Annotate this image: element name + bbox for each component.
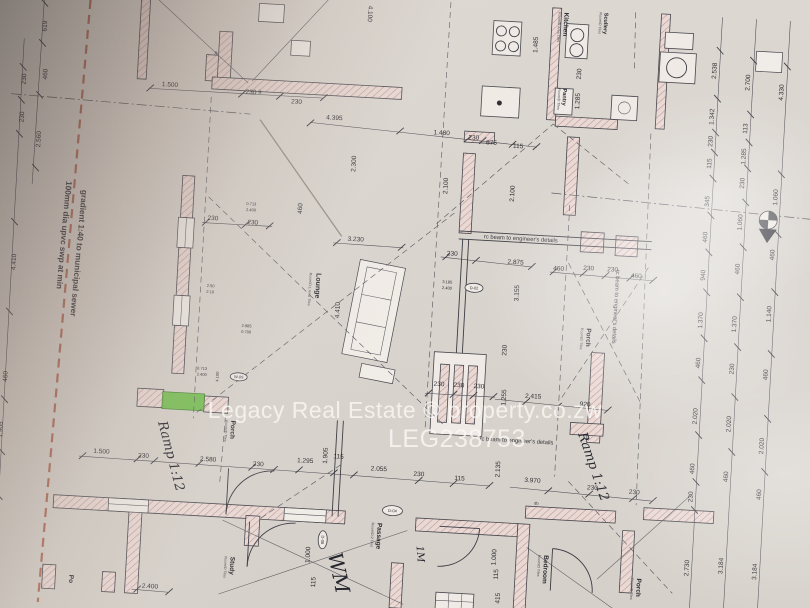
room-label-corner: Po [67, 575, 74, 584]
dim-label: 4.410 [334, 301, 342, 318]
dim-label: 230 [629, 489, 641, 497]
dim-label: 3.185 [442, 279, 453, 285]
room-label-passage: Passage [374, 523, 382, 550]
dim-label: 2.560 [35, 130, 43, 147]
room-sub: RoomID Tiles [597, 12, 602, 34]
dim-label: 230 [501, 344, 509, 356]
dim-label: 1.285 [740, 148, 748, 165]
dim-label: 230 [687, 491, 695, 503]
coffee-table [359, 363, 395, 383]
dim-label: 4.395 [326, 114, 343, 122]
dim-label: 1.060 [772, 189, 780, 206]
dim-label: 0.700 [241, 329, 252, 335]
shower-grid [435, 592, 474, 608]
dim-label: 230 [245, 89, 257, 97]
room-sub: RoomID Tiles [222, 556, 227, 578]
room-sub: RoomID Tiles [536, 555, 541, 577]
dim-label: 230 [576, 68, 584, 80]
dim-label: 2.985 [241, 323, 252, 329]
dim-label: 2.055 [371, 465, 388, 473]
survey-marker-icon [758, 211, 778, 244]
walls-layer [42, 0, 785, 608]
dim-label: 2.400 [246, 207, 257, 213]
sink-unit [659, 52, 697, 84]
dim-label: 1.140 [766, 306, 774, 323]
dim-label: 1.255 [500, 389, 508, 406]
dim-label: 460 [42, 68, 50, 80]
dimension-labels-right: 2.538 1.342 230 115 345 460 940 1.370 46… [683, 62, 787, 580]
room-sub: RoomID:1 Area Tiles [307, 273, 313, 306]
dim-label: 115 [310, 576, 318, 587]
dim-label: 4.410 [10, 253, 18, 270]
dim-label: 460 [297, 203, 305, 215]
dim-label: 1.485 [532, 36, 540, 53]
dim-label: 3.230 [347, 236, 364, 244]
dim-label: 460 [762, 369, 770, 381]
plan-tilt-group: 100mm dia upvc swp at min gradient 1:40 … [0, 0, 810, 608]
stove [492, 21, 522, 57]
dim-label: 1.000 [304, 546, 312, 563]
dim-label: 2.538 [711, 62, 719, 79]
dimension-labels-left: 619 230 460 230 2.560 4.410 460 1.905 23… [0, 19, 52, 521]
dim-label: 4.100 [366, 5, 374, 22]
door-tag: D-08 [320, 535, 326, 545]
dim-label: 1.480 [433, 129, 450, 137]
sewer-line-group: 100mm dia upvc swp at min gradient 1:40 … [37, 0, 101, 604]
dim-label: 1.370 [731, 316, 739, 333]
window-tag: W-09 [234, 374, 245, 380]
dim-label: 460 [769, 249, 777, 261]
door-tag: D-04 [388, 508, 398, 514]
dimension-labels-middle: 230 230 0.713 2.400 460 3.230 230 2.875 … [196, 198, 645, 413]
dim-label: 230 [247, 219, 259, 227]
dim-label: 1.000 [491, 549, 499, 566]
dim-label: 230 [583, 265, 595, 273]
pen-crease-line [254, 120, 348, 237]
room-label-kitchen: Kitchen [561, 12, 569, 36]
rc-beam-note: rc beam to engineer's details [479, 436, 553, 446]
floorplan-photo: 100mm dia upvc swp at min gradient 1:40 … [0, 0, 810, 608]
room-sub: RoomID:2 Tiles [369, 522, 374, 547]
dim-label: 2.100 [442, 177, 450, 194]
dim-label: 2.700 [744, 74, 752, 91]
dim-label: 460 [553, 265, 565, 273]
dim-label: 0.713 [246, 201, 257, 207]
dim-label: 2.430 [235, 0, 252, 1]
hip-lines-and-doors [119, 0, 717, 608]
dim-label: 875 [486, 139, 498, 147]
dim-label: 3.184 [751, 563, 759, 580]
room-label-study: Study [228, 557, 236, 576]
dim-label: 1.905 [0, 421, 5, 438]
dim-label: 2.135 [494, 461, 502, 478]
dim-label: 4.100 [214, 371, 220, 382]
handwriting-im: 1M [414, 545, 426, 563]
dim-label: 460 [734, 263, 742, 275]
dim-label: 113 [742, 123, 750, 134]
dim-label: 1.060 [737, 214, 745, 231]
sewer-note-line1: 100mm dia upvc swp at min [55, 181, 74, 290]
dim-label: 460 [702, 231, 710, 243]
handwriting-ramp: Ramp 1:12 [154, 419, 187, 493]
dim-label: 345 [704, 195, 712, 207]
db-tag: db [257, 89, 262, 94]
dim-label: 2.400 [197, 371, 208, 377]
floorplan-drawing: 100mm dia upvc swp at min gradient 1:40 … [0, 0, 810, 608]
dim-label: 415 [494, 592, 502, 604]
dim-label: 920 [579, 401, 591, 409]
dim-label: 230 [138, 452, 150, 460]
dim-label: 230 [729, 363, 737, 375]
dim-label: 1.500 [93, 448, 110, 456]
handwriting-ramp: Ramp 1:12 [574, 429, 612, 503]
room-sub: RoomID Tiles [579, 328, 584, 350]
appliance [611, 95, 638, 120]
dim-label: 460 [756, 489, 764, 501]
dim-label: 115 [333, 453, 344, 461]
dim-label: 4.330 [778, 84, 786, 101]
rc-beam-note: rc beam to engineer's details [610, 270, 620, 344]
dim-label: 0.713 [197, 365, 208, 371]
dim-label: 460 [689, 463, 697, 475]
dim-label: 619 [42, 20, 50, 32]
dim-label: 230 [447, 250, 459, 258]
room-label-porch-front: Porch [228, 420, 236, 439]
dim-label: 1.295 [297, 457, 314, 465]
dim-label: 115 [706, 158, 714, 169]
dim-label: 1.500 [162, 81, 179, 89]
dim-label: 230 [21, 73, 29, 85]
dim-label: 2.020 [758, 437, 766, 454]
dim-label: 230 [253, 461, 265, 469]
dim-label: 115 [493, 569, 501, 580]
dim-label: 3.970 [524, 477, 541, 485]
door-tag: D-02 [470, 285, 480, 291]
dim-label: 2.100 [509, 185, 517, 202]
dim-label: 230 [207, 215, 219, 223]
dim-label: 230 [413, 471, 425, 479]
dim-label: 2.400 [142, 583, 159, 591]
dim-label: 460 [631, 273, 643, 281]
room-sub: RoomID Tiles [223, 420, 228, 442]
dim-label: 2.50 [207, 283, 216, 288]
dim-label: 3.155 [513, 284, 521, 301]
dim-label: 230 [468, 134, 480, 142]
dim-label: 460 [695, 357, 703, 369]
dim-label: 2.020 [692, 408, 700, 425]
dimension-labels-top: 2.430 4.100 1.500 230 230 4.395 1.480 23… [156, 0, 586, 205]
dim-label: 1.285 [574, 93, 582, 110]
dim-label: 2.580 [200, 456, 217, 464]
room-label-lounge: Lounge [313, 273, 321, 299]
dim-label: 460 [2, 370, 10, 382]
room-label-porch-right: Porch [584, 328, 592, 347]
dim-label: 2.875 [507, 259, 524, 267]
dim-label: 230 [19, 111, 27, 123]
dim-label: 1.342 [708, 108, 716, 125]
highlighted-wall-green [162, 392, 205, 411]
handwriting-wm: WM [323, 550, 355, 596]
dim-label: 460 [723, 471, 731, 483]
dim-label: 3.184 [717, 557, 725, 574]
dim-label: 2.400 [442, 285, 453, 291]
dim-label: 230 [433, 381, 445, 389]
dim-label: 115 [454, 475, 465, 483]
dim-label: 2.730 [683, 559, 691, 576]
dim-label: 230 [739, 177, 747, 189]
dim-label: 230 [473, 383, 485, 391]
dim-label: 940 [700, 269, 708, 281]
dim-label: 2.415 [525, 393, 542, 401]
dim-label: 230 [291, 98, 303, 106]
sofa [342, 259, 406, 362]
room-label-porch-rear: Porch [634, 578, 642, 597]
dim-label: 1.905 [322, 447, 330, 464]
db-tag: db [534, 501, 539, 506]
dim-label: 2.10 [206, 289, 215, 294]
dim-label: 115 [513, 143, 524, 151]
dim-label: 230 [707, 135, 715, 147]
dim-label: 230 [453, 382, 465, 390]
windows-layer [108, 214, 342, 523]
dim-label: 2.020 [725, 415, 733, 432]
dim-label: 2.300 [350, 155, 358, 172]
door-arc-bedroom [550, 549, 594, 593]
sewer-line [38, 0, 93, 603]
dim-label: 1.370 [697, 312, 705, 329]
